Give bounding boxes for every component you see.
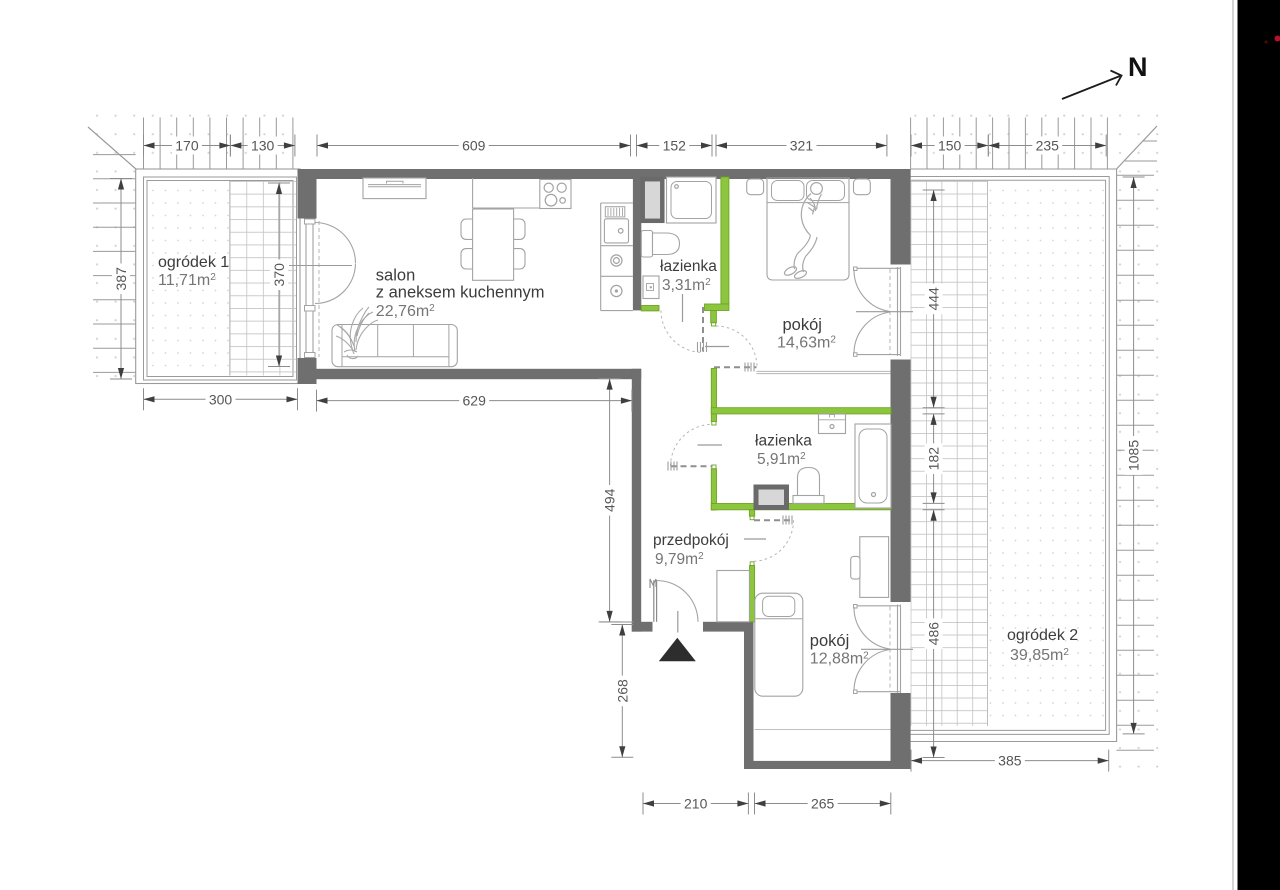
svg-text:300: 300	[209, 391, 233, 407]
svg-text:22,76m2: 22,76m2	[376, 303, 435, 320]
svg-text:385: 385	[998, 753, 1022, 769]
svg-text:370: 370	[271, 263, 287, 287]
svg-text:3,31m2: 3,31m2	[662, 277, 711, 294]
svg-text:14,63m2: 14,63m2	[777, 335, 836, 352]
svg-text:łazienka: łazienka	[660, 258, 717, 275]
svg-text:przedpokój: przedpokój	[653, 532, 729, 549]
svg-text:z aneksem kuchennym: z aneksem kuchennym	[376, 284, 545, 302]
svg-text:321: 321	[790, 138, 814, 154]
svg-text:ogródek 2: ogródek 2	[1007, 627, 1078, 644]
svg-text:11,71m2: 11,71m2	[158, 272, 216, 289]
svg-text:130: 130	[251, 138, 275, 154]
svg-text:152: 152	[663, 138, 687, 154]
svg-text:629: 629	[463, 393, 487, 409]
svg-text:486: 486	[926, 622, 942, 646]
svg-text:9,79m2: 9,79m2	[655, 551, 704, 568]
svg-text:387: 387	[113, 267, 129, 291]
svg-text:pokój: pokój	[810, 632, 849, 650]
svg-text:494: 494	[602, 488, 618, 512]
svg-text:pokój: pokój	[783, 316, 822, 334]
svg-text:182: 182	[926, 447, 942, 471]
svg-text:ogródek 1: ogródek 1	[158, 254, 229, 271]
svg-text:265: 265	[811, 796, 835, 812]
svg-text:5,91m2: 5,91m2	[757, 451, 806, 468]
svg-text:170: 170	[175, 138, 199, 154]
svg-text:N: N	[1128, 52, 1148, 82]
svg-text:łazienka: łazienka	[755, 433, 812, 450]
svg-text:235: 235	[1036, 138, 1060, 154]
svg-text:150: 150	[938, 138, 962, 154]
svg-text:12,88m2: 12,88m2	[810, 651, 869, 668]
svg-text:609: 609	[462, 138, 486, 154]
svg-text:210: 210	[684, 796, 708, 812]
svg-text:39,85m2: 39,85m2	[1010, 647, 1069, 664]
svg-text:1085: 1085	[1126, 440, 1142, 471]
svg-text:salon: salon	[376, 267, 415, 285]
svg-text:444: 444	[926, 287, 942, 311]
svg-text:268: 268	[614, 679, 630, 703]
